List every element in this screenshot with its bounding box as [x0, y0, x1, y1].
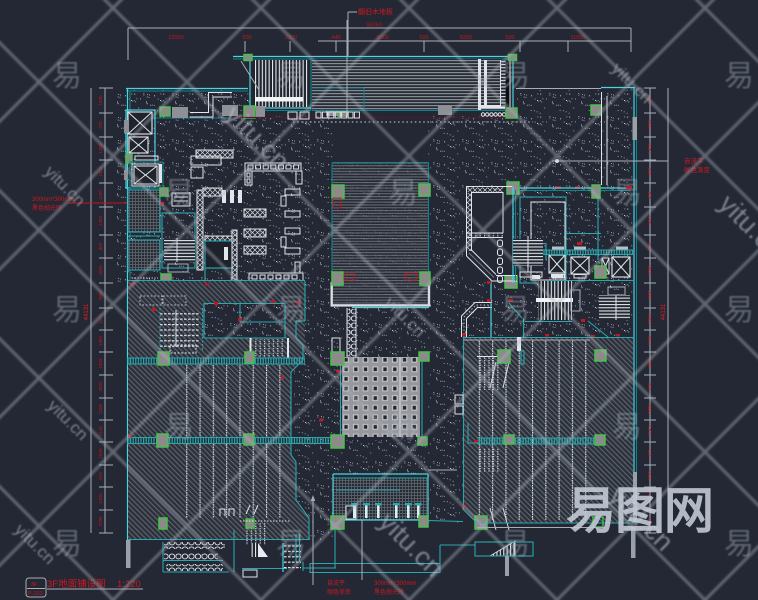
svg-text:600: 600	[419, 35, 428, 41]
svg-text:易: 易	[52, 528, 82, 561]
svg-text:1890: 1890	[98, 95, 103, 106]
svg-text:自流平: 自流平	[327, 579, 345, 587]
svg-text:8300: 8300	[460, 35, 472, 41]
svg-text:600: 600	[647, 167, 652, 175]
svg-text:1630: 1630	[647, 290, 652, 301]
svg-text:咖色渐变: 咖色渐变	[327, 588, 351, 596]
svg-text:易图网: 易图网	[566, 483, 714, 539]
svg-text:2280: 2280	[98, 516, 103, 527]
svg-text:12000: 12000	[168, 35, 183, 41]
svg-text:1200: 1200	[647, 470, 652, 481]
svg-text:1500: 1500	[98, 358, 103, 369]
svg-text:易: 易	[164, 177, 194, 210]
svg-text:915: 915	[647, 449, 652, 457]
svg-text:3F: 3F	[31, 582, 38, 588]
svg-text:44131: 44131	[661, 303, 667, 320]
svg-text:1000: 1000	[98, 265, 103, 276]
svg-text:1145: 1145	[98, 426, 103, 436]
svg-text:1200: 1200	[647, 335, 652, 346]
svg-text:915: 915	[98, 472, 103, 480]
svg-text:易: 易	[276, 528, 306, 561]
svg-text:P-103: P-103	[28, 591, 43, 597]
svg-text:易: 易	[500, 60, 530, 93]
svg-text:440: 440	[331, 35, 340, 41]
svg-text:600: 600	[647, 382, 652, 390]
svg-text:翻旧木地板: 翻旧木地板	[358, 7, 393, 16]
svg-text:50050: 50050	[366, 23, 381, 29]
svg-text:2082: 2082	[98, 381, 103, 392]
svg-text:易: 易	[500, 528, 530, 561]
svg-text:1190: 1190	[98, 190, 103, 200]
svg-text:易: 易	[388, 177, 418, 210]
svg-text:1350: 1350	[98, 215, 103, 226]
svg-text:225: 225	[98, 121, 103, 129]
svg-text:1200: 1200	[98, 493, 103, 504]
svg-text:3200: 3200	[647, 403, 652, 414]
svg-text:454: 454	[647, 191, 652, 199]
svg-text:易: 易	[52, 294, 82, 327]
svg-text:1480: 1480	[647, 143, 652, 154]
svg-text:易: 易	[164, 411, 194, 444]
svg-text:1700: 1700	[647, 119, 652, 130]
svg-text:易: 易	[724, 294, 754, 327]
svg-text:1495: 1495	[647, 215, 652, 226]
svg-text:500: 500	[242, 35, 251, 41]
svg-text:易: 易	[500, 294, 530, 327]
svg-text:易: 易	[724, 60, 754, 93]
svg-text:易: 易	[612, 177, 642, 210]
svg-text:1200: 1200	[98, 403, 103, 414]
svg-text:44131: 44131	[84, 303, 90, 320]
svg-text:易: 易	[724, 528, 754, 561]
svg-text:865: 865	[98, 242, 103, 250]
svg-text:500: 500	[505, 35, 514, 41]
svg-text:易: 易	[388, 411, 418, 444]
svg-text:3360: 3360	[647, 313, 652, 324]
svg-text:易: 易	[52, 60, 82, 93]
svg-text:1950: 1950	[98, 335, 103, 346]
svg-text:1500: 1500	[98, 448, 103, 459]
svg-text:1800: 1800	[647, 265, 652, 276]
svg-text:易: 易	[612, 411, 642, 444]
svg-text:易: 易	[276, 294, 306, 327]
svg-text:1145: 1145	[647, 426, 652, 436]
svg-text:易: 易	[276, 60, 306, 93]
